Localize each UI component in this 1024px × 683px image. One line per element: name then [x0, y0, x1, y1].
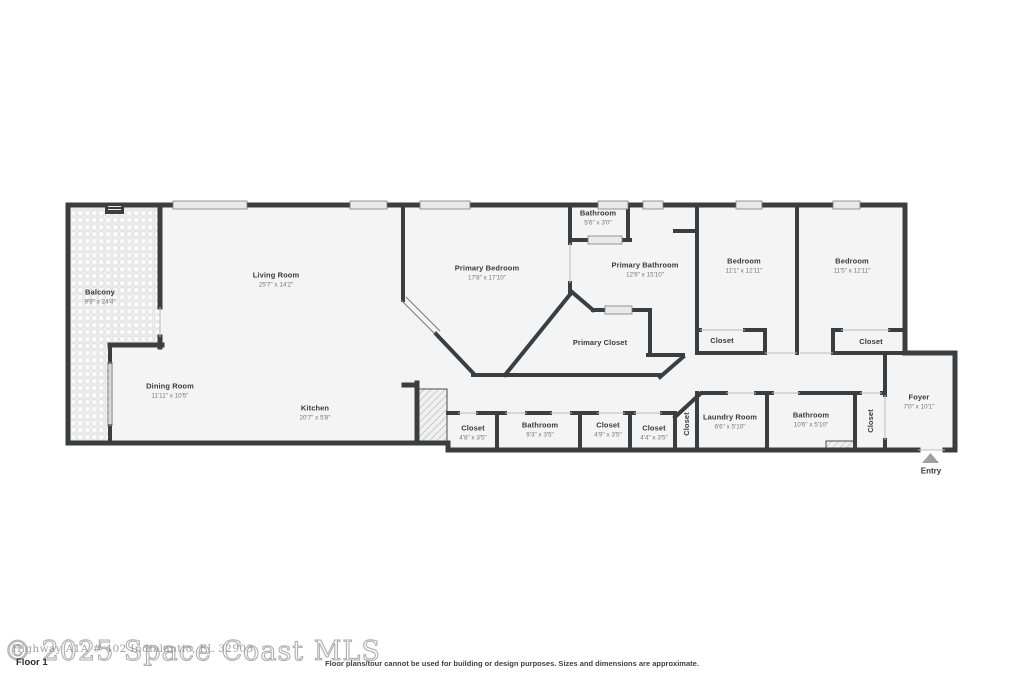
floor-label: Floor 1 [16, 657, 48, 668]
disclaimer-text: Floor plans/tour cannot be used for buil… [325, 659, 699, 668]
floorplan-stage: Balcony9'9" x 24'4"Living Room25'7" x 14… [0, 0, 1024, 683]
floorplan-drawing [0, 0, 1024, 683]
entry-label: Entry [921, 467, 941, 476]
floorplan-page: { "floorplan": { "floor_label": "Floor 1… [0, 0, 1024, 683]
balcony-door-marker [105, 203, 124, 214]
watermark-secondary: Highway A1A # 402 Indialantic, FL 32903 [12, 643, 254, 655]
entry-arrow-icon [922, 453, 939, 463]
